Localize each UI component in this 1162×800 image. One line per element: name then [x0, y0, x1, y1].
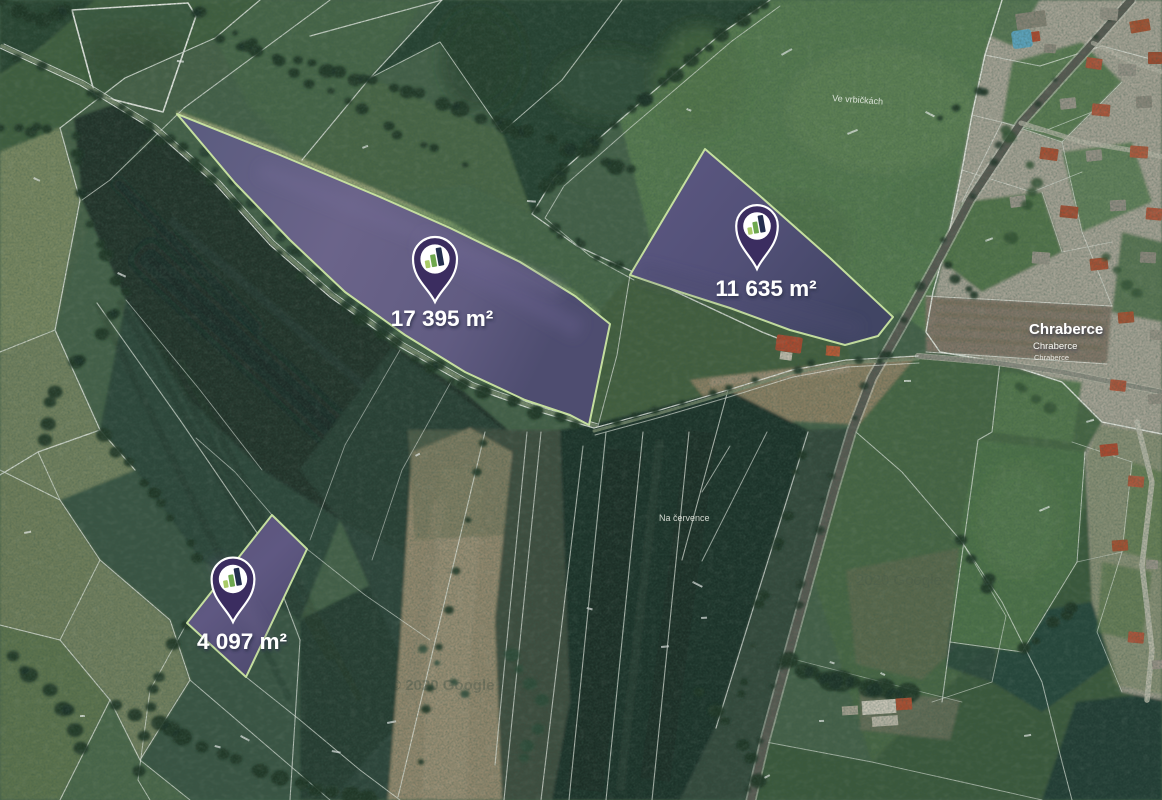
- svg-text:Chraberce: Chraberce: [1033, 341, 1077, 352]
- svg-text:Na července: Na července: [659, 513, 710, 523]
- svg-text:4 097 m²: 4 097 m²: [197, 629, 288, 654]
- svg-text:Chraberce: Chraberce: [1034, 353, 1069, 362]
- svg-text:2020 Google: 2020 Google: [856, 572, 942, 589]
- svg-text:Chraberce: Chraberce: [1029, 321, 1103, 338]
- svg-text:2020 Google: 2020 Google: [140, 263, 241, 282]
- svg-text:17 395 m²: 17 395 m²: [391, 306, 494, 331]
- svg-text:11 635 m²: 11 635 m²: [715, 276, 817, 301]
- svg-text:© 2020 Google: © 2020 Google: [390, 677, 494, 694]
